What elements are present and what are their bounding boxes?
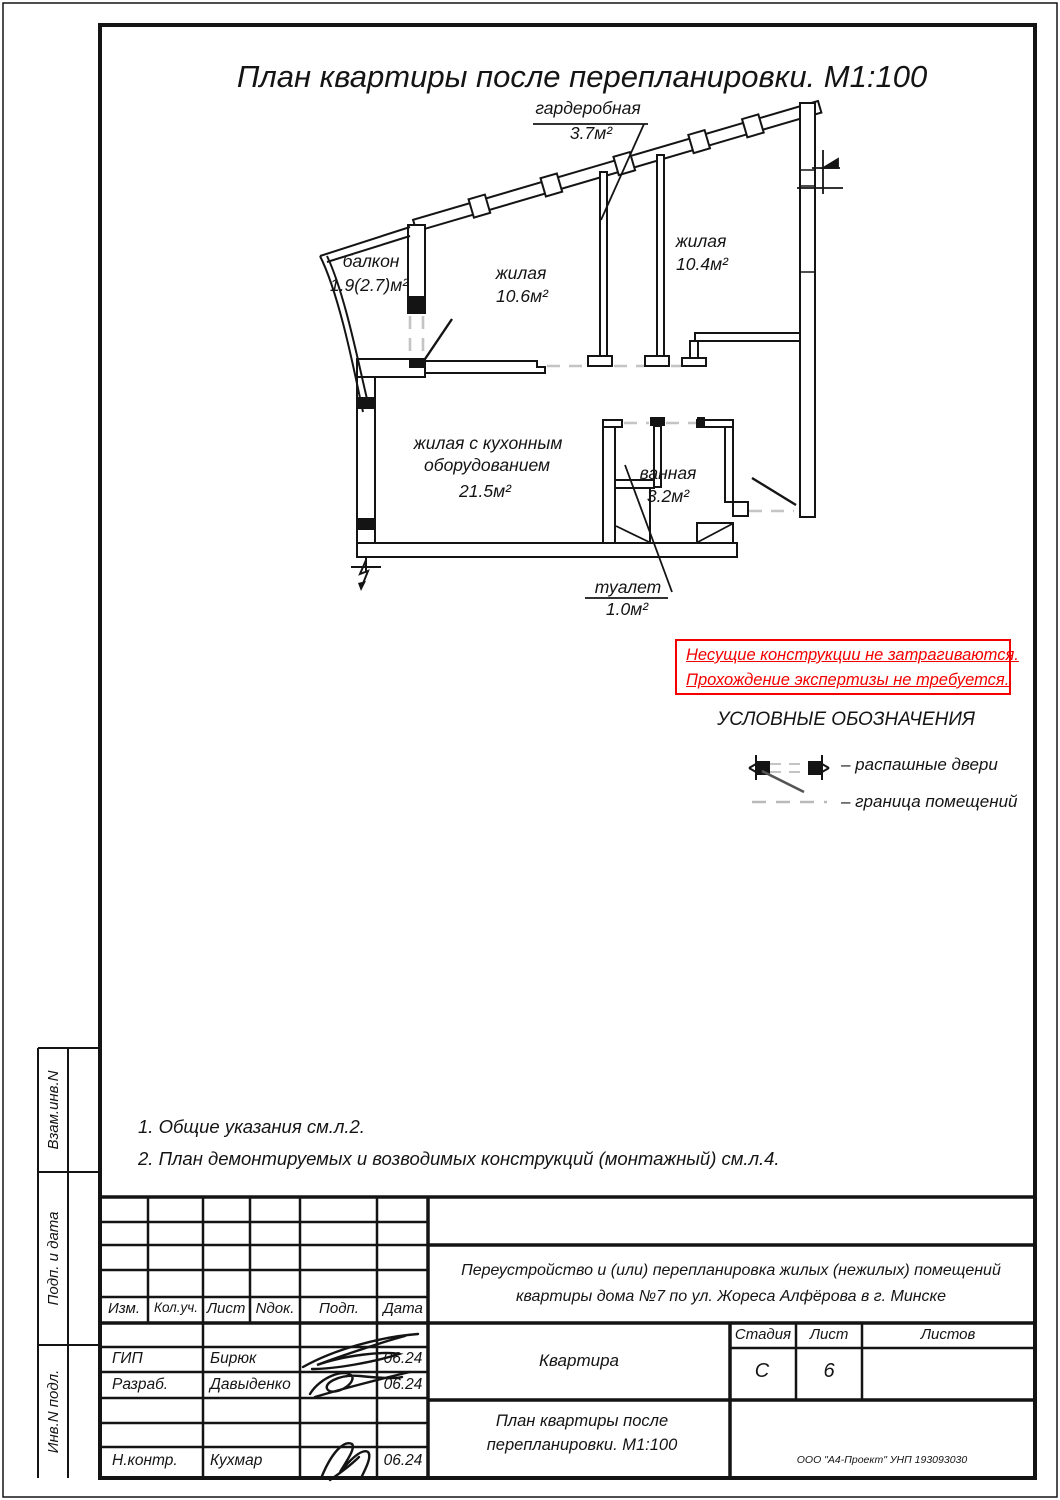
room-label-wardrobe: гардеробная [535, 99, 640, 118]
side-stamp-inv: Инв.N подл. [40, 1345, 68, 1478]
ground-mark-icon [351, 557, 381, 591]
tb-date-razrab: 06.24 [384, 1376, 423, 1393]
warning-box: Несущие конструкции не затрагиваются. Пр… [675, 639, 1011, 695]
room-label-toilet: туалет [595, 578, 661, 597]
tb-col-koluch: Кол.уч. [154, 1301, 198, 1316]
room-area-living2: 10.4м² [676, 255, 728, 274]
tb-name-gip: Бирюк [210, 1350, 256, 1367]
side-stamp-podp: Подп. и дата [40, 1172, 68, 1345]
room-area-living1: 10.6м² [496, 287, 548, 306]
legend-title: УСЛОВНЫЕ ОБОЗНАЧЕНИЯ [717, 710, 975, 731]
tb-col-podp: Подп. [319, 1301, 359, 1318]
tb-role-razrab: Разраб. [112, 1376, 168, 1393]
tb-stage-value: С [755, 1360, 769, 1382]
side-stamp-vzam: Взам.инв.N [40, 1048, 68, 1172]
tb-sheets-label: Листов [921, 1327, 976, 1344]
tb-project-line2: квартиры дома №7 по ул. Жореса Алфёрова … [516, 1288, 946, 1306]
warning-line-2: Прохождение экспертизы не требуется. [686, 668, 1009, 693]
tb-col-data: Дата [383, 1301, 423, 1318]
room-area-balcony: 1.9(2.7)м² [330, 276, 408, 295]
tb-object-name: Квартира [539, 1352, 619, 1371]
room-label-balcony: балкон [343, 252, 400, 271]
tb-date-gip: 06.24 [384, 1350, 423, 1367]
tb-company: ООО "А4-Проект" УНП 193093030 [797, 1455, 967, 1467]
room-area-kitchen-living: 21.5м² [459, 482, 511, 501]
tb-stage-label: Стадия [735, 1327, 791, 1344]
tb-sheet-label: Лист [810, 1327, 849, 1344]
legend-door-label: – распашные двери [841, 756, 998, 775]
tb-col-list: Лист [207, 1301, 246, 1318]
room-label-living2: жилая [676, 232, 727, 251]
tb-col-izm: Изм. [108, 1301, 140, 1318]
room-label-kitchen-living: жилая с кухонным [414, 434, 563, 453]
tb-role-gip: ГИП [112, 1350, 143, 1367]
legend-boundary-label: – граница помещений [841, 793, 1017, 812]
drawing-sheet: План квартиры после перепланировки. М1:1… [0, 0, 1060, 1500]
note-2: 2. План демонтируемых и возводимых конст… [138, 1149, 780, 1169]
tb-project-line1: Переустройство и (или) перепланировка жи… [461, 1262, 1001, 1280]
warning-line-1: Несущие конструкции не затрагиваются. [686, 643, 1009, 668]
tb-drawing-line2: перепланировки. М1:100 [487, 1436, 678, 1454]
room-label-living1: жилая [496, 264, 547, 283]
tb-role-nkontr: Н.контр. [112, 1452, 178, 1469]
room-area-bathroom: 3.2м² [647, 487, 689, 506]
tb-drawing-line1: План квартиры после [496, 1412, 668, 1430]
tb-name-razrab: Давыденко [210, 1376, 291, 1393]
legend-door-symbol [749, 755, 829, 792]
walls-group [357, 97, 822, 557]
room-label-bathroom: ванная [640, 464, 697, 483]
tb-col-ndok: Nдок. [256, 1301, 295, 1318]
tb-sheet-value: 6 [823, 1360, 834, 1382]
tb-date-nkontr: 06.24 [384, 1452, 423, 1469]
note-1: 1. Общие указания см.л.2. [138, 1117, 365, 1137]
room-area-wardrobe: 3.7м² [570, 124, 612, 143]
page-title: План квартиры после перепланировки. М1:1… [237, 60, 927, 94]
room-area-toilet: 1.0м² [606, 600, 648, 619]
tb-name-nkontr: Кухмар [210, 1452, 262, 1469]
room-label-kitchen-living-2: оборудованием [424, 456, 550, 475]
